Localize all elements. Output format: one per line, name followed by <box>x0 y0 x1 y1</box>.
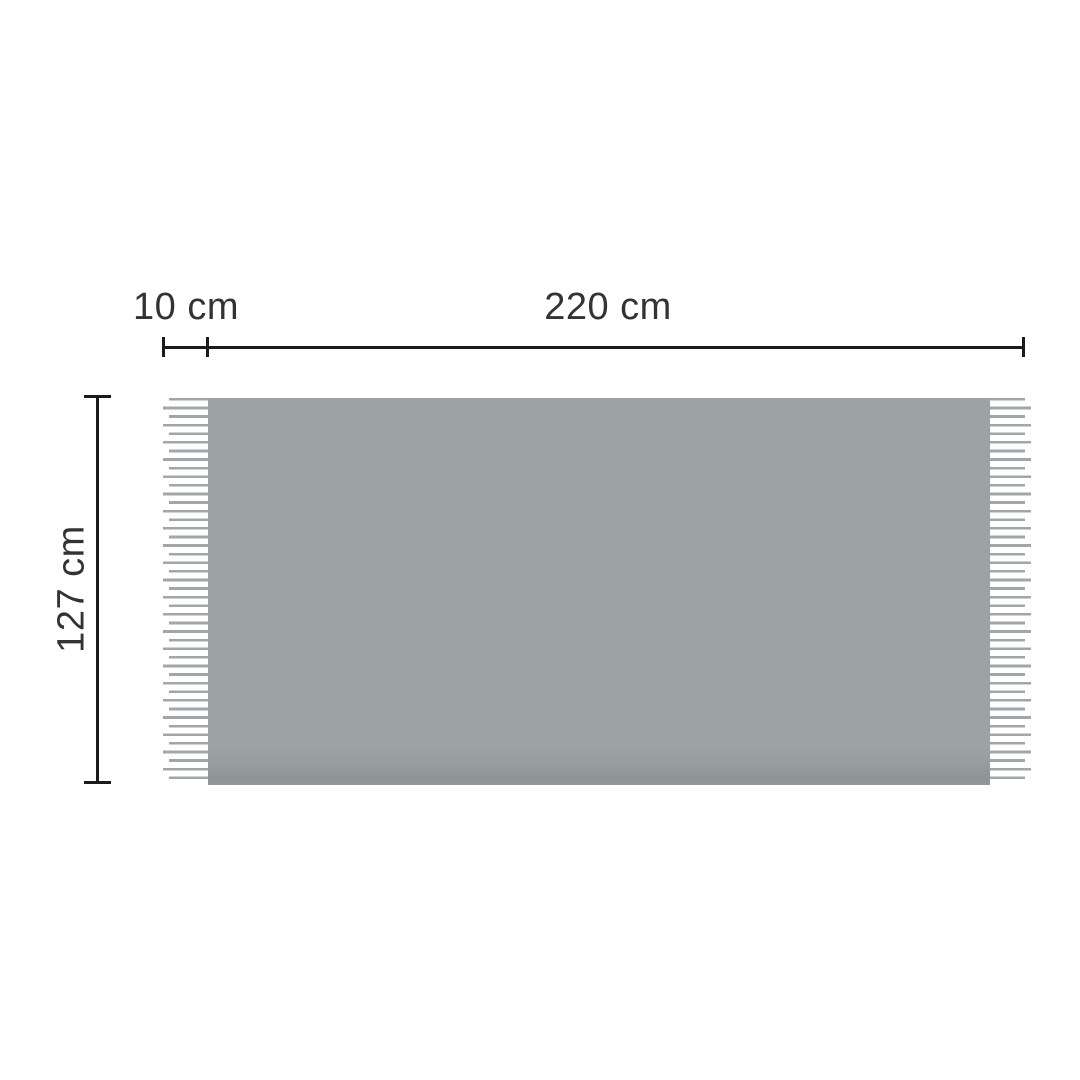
dimension-tick-fringe-boundary <box>206 337 209 357</box>
blanket-fringe-left <box>163 398 208 785</box>
dimension-tick-bottom <box>84 781 111 784</box>
vertical-dimension-line <box>96 396 99 784</box>
fringe-width-label: 10 cm <box>133 286 239 329</box>
dimension-diagram: 10 cm 220 cm 127 cm <box>0 0 1080 1080</box>
vertical-dimension-stem <box>96 396 99 784</box>
blanket-height-label: 127 cm <box>51 525 94 653</box>
blanket-fringe-right <box>990 398 1031 785</box>
dimension-tick-right <box>1022 337 1025 357</box>
blanket-width-label: 220 cm <box>544 286 672 329</box>
blanket-body <box>208 398 990 785</box>
dimension-tick-top <box>84 395 111 398</box>
horizontal-dimension-line <box>162 346 1025 349</box>
dimension-tick-left <box>162 337 165 357</box>
